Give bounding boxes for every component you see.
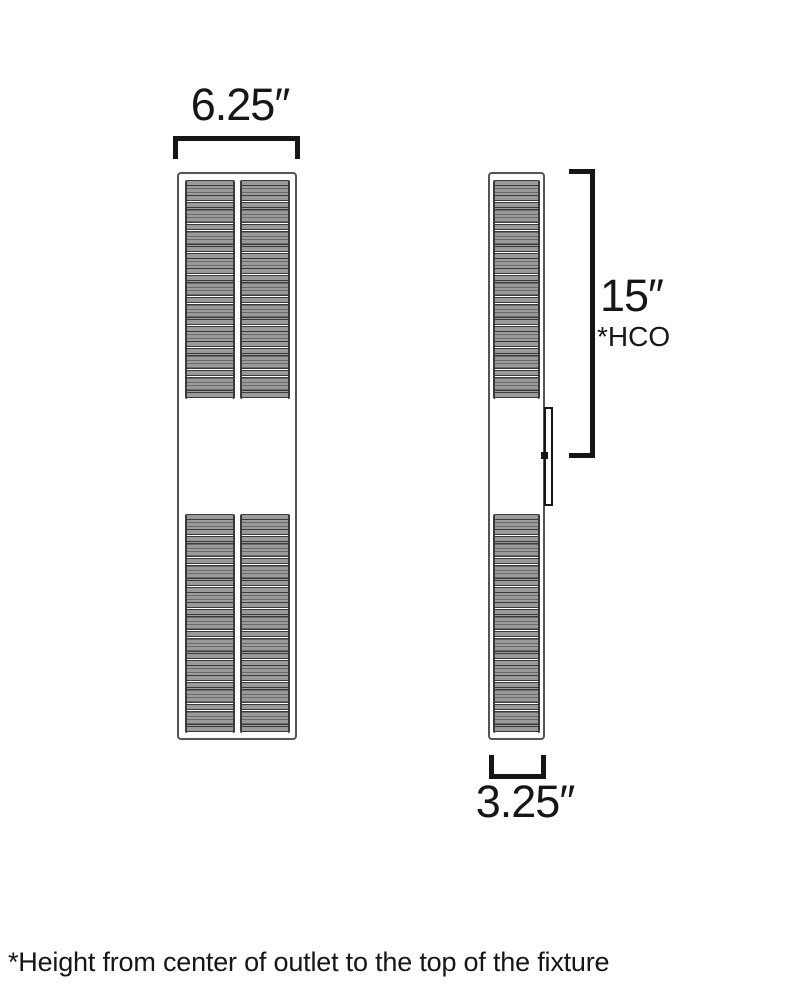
front-width-label: 6.25″ — [160, 80, 320, 130]
grille-column — [240, 514, 290, 733]
grille-column — [493, 180, 540, 399]
hco-height-bracket — [569, 169, 595, 458]
side-width-label: 3.25″ — [445, 777, 605, 827]
footnote: *Height from center of outlet to the top… — [8, 947, 609, 978]
front-top-grille — [185, 180, 290, 399]
front-width-bracket — [173, 136, 300, 159]
front-view-fixture — [177, 172, 297, 740]
side-view-fixture — [488, 172, 545, 740]
grille-column — [185, 180, 235, 399]
hco-height-label: 15″ — [600, 271, 663, 321]
grille-column — [185, 514, 235, 733]
front-bottom-grille — [185, 514, 290, 733]
hco-note-label: *HCO — [597, 321, 670, 353]
grille-column — [493, 514, 540, 733]
grille-column — [240, 180, 290, 399]
side-top-grille — [493, 180, 540, 399]
outlet-center-mark — [541, 452, 548, 459]
dimension-diagram: 6.25″ 15″ *HCO 3.25″ *Height from center… — [0, 0, 799, 1000]
side-bottom-grille — [493, 514, 540, 733]
